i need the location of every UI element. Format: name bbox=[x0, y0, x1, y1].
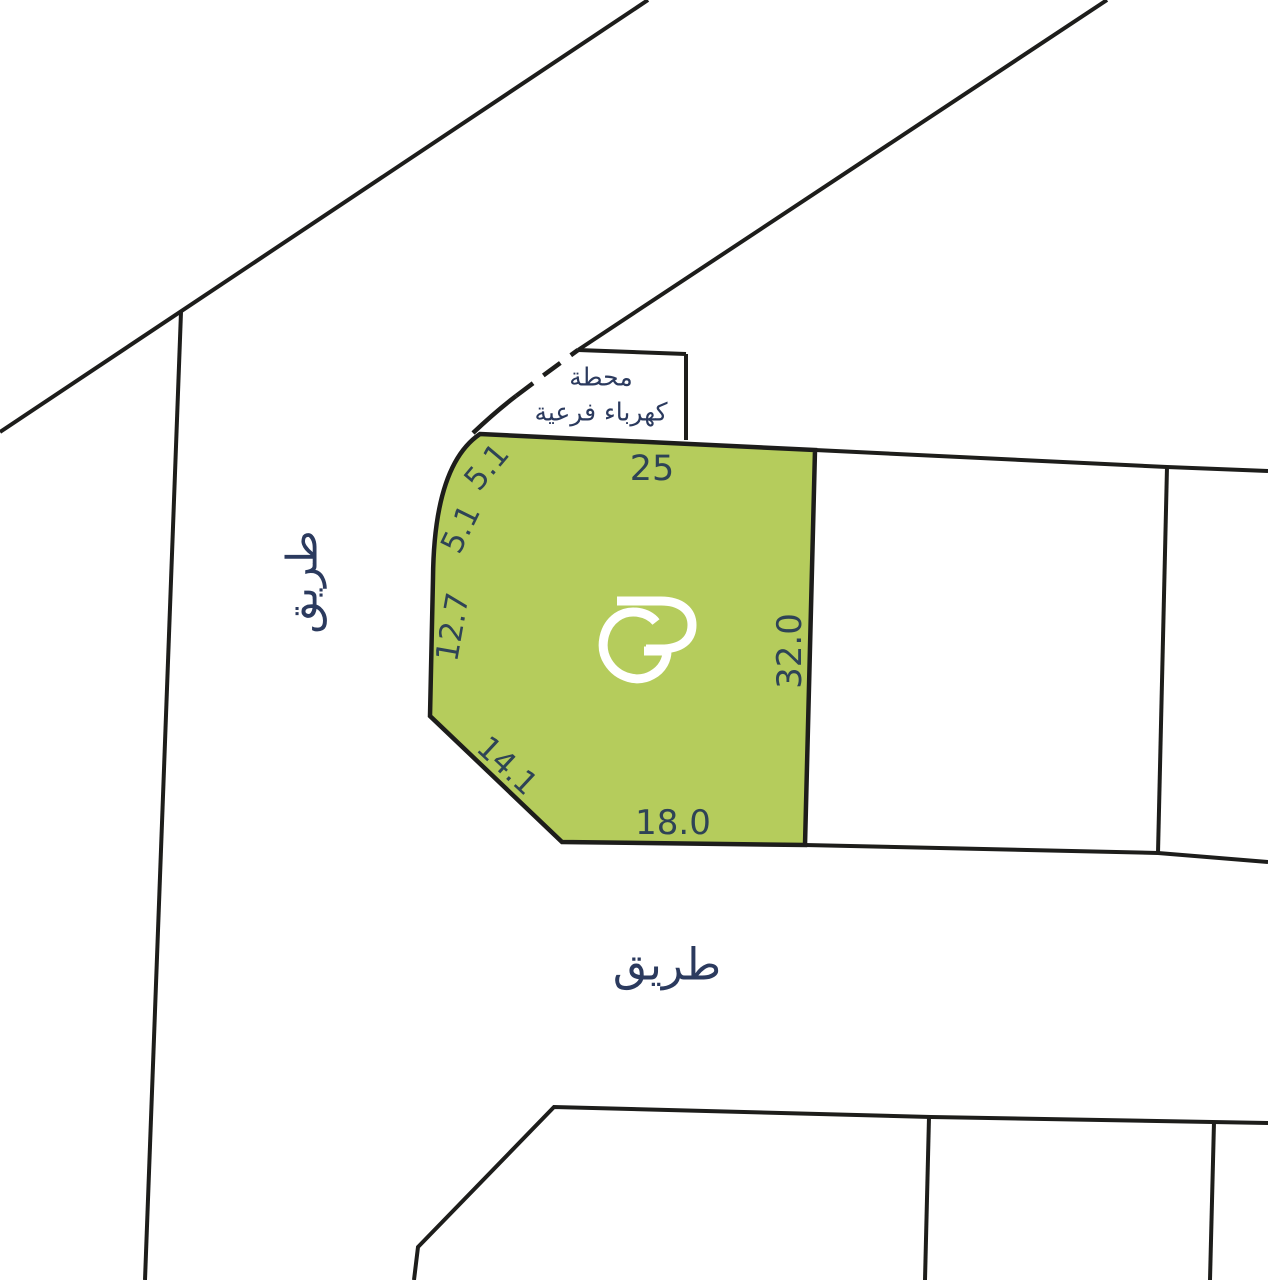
highlighted-plot-layer bbox=[430, 434, 815, 845]
highlighted-plot[interactable] bbox=[430, 434, 815, 845]
substation-label-line1: محطة bbox=[569, 363, 632, 392]
right-plot-top-edge bbox=[815, 450, 1268, 471]
road-label-bottom: طريق bbox=[613, 940, 721, 991]
bottom-plot-divider-2 bbox=[1210, 1122, 1214, 1280]
cadastral-map: طريقطريق255.15.112.714.118.032.0محطةكهرب… bbox=[0, 0, 1268, 1280]
dim-32-0: 32.0 bbox=[770, 613, 810, 689]
dim-18-0: 18.0 bbox=[635, 803, 711, 843]
substation-curve-solid bbox=[473, 396, 516, 433]
substation-top-edge bbox=[578, 350, 686, 354]
substation-label-line2: كهرباء فرعية bbox=[534, 398, 667, 428]
map-canvas[interactable]: طريقطريق255.15.112.714.118.032.0محطةكهرب… bbox=[0, 0, 1268, 1280]
parcel-line-left bbox=[145, 312, 181, 1280]
road-diagonal-top-right bbox=[578, 0, 1107, 350]
right-plot-bottom-edge bbox=[805, 845, 1268, 862]
right-plot-divider bbox=[1158, 467, 1167, 853]
road-label-left: طريق bbox=[278, 530, 327, 633]
bottom-plot-divider-1 bbox=[925, 1117, 929, 1280]
dim-25: 25 bbox=[630, 449, 675, 489]
bottom-plots-top-edge bbox=[414, 1107, 1268, 1280]
